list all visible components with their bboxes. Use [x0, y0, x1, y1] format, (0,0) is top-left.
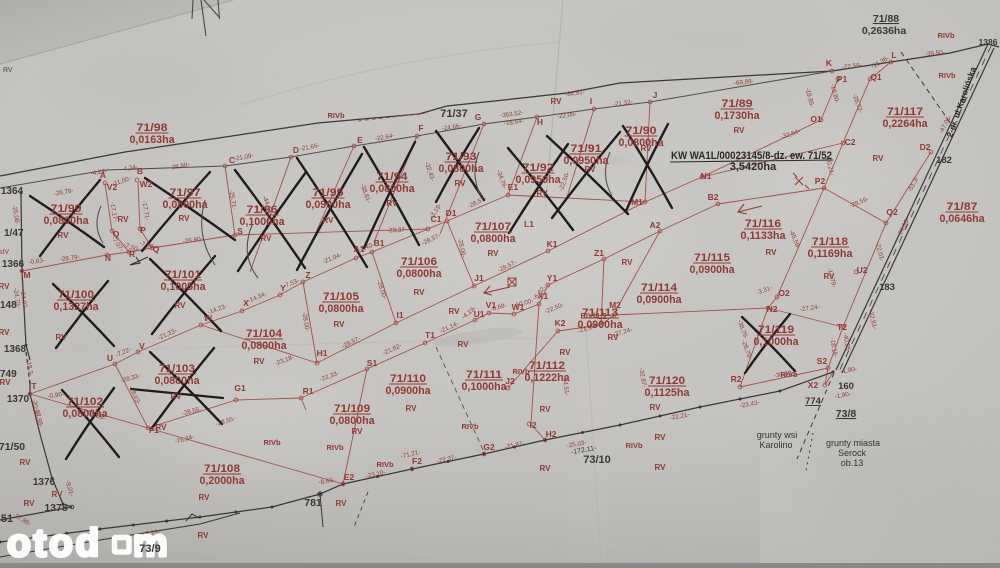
svg-text:C2: C2 — [845, 137, 856, 147]
svg-text:71/89: 71/89 — [722, 98, 753, 110]
svg-text:P: P — [140, 225, 146, 235]
svg-text:0,1730ha: 0,1730ha — [715, 110, 761, 122]
svg-text:E2: E2 — [344, 472, 355, 482]
svg-text:G: G — [475, 112, 482, 122]
svg-text:otod: otod — [7, 522, 102, 563]
svg-text:RV: RV — [537, 189, 549, 198]
svg-text:I2: I2 — [529, 420, 536, 430]
svg-text:1378: 1378 — [44, 502, 68, 514]
svg-text:182: 182 — [936, 155, 952, 166]
svg-text:71/107: 71/107 — [475, 221, 511, 233]
svg-text:71/99: 71/99 — [51, 203, 82, 215]
svg-text:RV: RV — [560, 348, 572, 357]
svg-text:73/8: 73/8 — [836, 408, 857, 420]
svg-text:0,0800ha: 0,0800ha — [471, 233, 517, 245]
svg-text:E: E — [357, 135, 363, 145]
svg-text:0,0800ha: 0,0800ha — [439, 163, 485, 175]
svg-text:RIVb: RIVb — [376, 460, 394, 469]
svg-text:0,0800ha: 0,0800ha — [370, 183, 416, 195]
svg-text:RV: RV — [540, 405, 552, 414]
svg-text:U: U — [107, 353, 113, 363]
svg-text:RV: RV — [56, 333, 68, 342]
svg-text:71/50: 71/50 — [0, 441, 25, 453]
svg-text:3,5420ha: 3,5420ha — [730, 161, 777, 173]
svg-text:J1: J1 — [474, 273, 484, 283]
svg-text:RV: RV — [585, 165, 597, 174]
svg-text:R2: R2 — [731, 374, 742, 384]
svg-text:U2: U2 — [857, 265, 868, 275]
svg-text:RV: RV — [414, 288, 426, 297]
svg-text:0,0800ha: 0,0800ha — [242, 340, 288, 352]
svg-text:71/106: 71/106 — [401, 256, 437, 268]
svg-text:T1: T1 — [425, 330, 435, 340]
svg-text:1/47: 1/47 — [4, 228, 24, 239]
svg-text:71/100: 71/100 — [58, 289, 94, 301]
svg-text:L: L — [891, 50, 896, 60]
svg-text:RV: RV — [0, 282, 10, 291]
svg-text:F: F — [418, 123, 423, 133]
svg-text:RV: RV — [540, 464, 552, 473]
svg-text:71/101: 71/101 — [165, 269, 201, 281]
svg-text:RV: RV — [650, 403, 662, 412]
svg-text:0,1133ha: 0,1133ha — [741, 230, 787, 242]
svg-text:73/9: 73/9 — [139, 543, 160, 555]
svg-text:RV: RV — [622, 258, 634, 267]
svg-text:774: 774 — [805, 396, 822, 407]
svg-text:0,1125ha: 0,1125ha — [645, 387, 691, 399]
svg-text:71/37: 71/37 — [440, 108, 468, 120]
svg-text:B2: B2 — [708, 192, 719, 202]
svg-text:71/91: 71/91 — [571, 143, 602, 155]
svg-text:RV: RV — [406, 404, 418, 413]
svg-text:0,0900ha: 0,0900ha — [306, 199, 352, 211]
svg-text:O1: O1 — [810, 114, 822, 124]
svg-text:Z: Z — [305, 270, 310, 280]
svg-text:0,0800ha: 0,0800ha — [155, 375, 201, 387]
svg-text:71/87: 71/87 — [947, 201, 978, 213]
svg-text:RV: RV — [171, 392, 183, 401]
svg-text:sIV: sIV — [0, 249, 9, 256]
svg-text:RV: RV — [198, 531, 210, 540]
svg-text:71/90: 71/90 — [626, 125, 657, 137]
svg-text:RV: RV — [734, 126, 746, 135]
svg-text:RV: RV — [3, 67, 13, 74]
svg-text:RV: RV — [655, 433, 667, 442]
svg-text:0,0900ha: 0,0900ha — [386, 385, 432, 397]
svg-text:RV: RV — [488, 249, 500, 258]
svg-text:RV: RV — [0, 328, 10, 337]
svg-text:0,1000ha: 0,1000ha — [754, 336, 800, 348]
svg-text:160: 160 — [838, 381, 854, 392]
svg-text:71/94: 71/94 — [377, 171, 409, 183]
svg-text:D1: D1 — [446, 208, 457, 218]
svg-text:RV: RV — [156, 423, 168, 432]
svg-text:Q2: Q2 — [886, 207, 898, 217]
svg-text:RV: RV — [449, 307, 461, 316]
svg-text:71/95: 71/95 — [313, 187, 344, 199]
svg-text:0,0800ha: 0,0800ha — [163, 199, 209, 211]
svg-text:I: I — [590, 96, 592, 106]
svg-text:RV: RV — [20, 458, 32, 467]
svg-text:0,1327ha: 0,1327ha — [54, 301, 100, 313]
svg-text:E1: E1 — [508, 182, 519, 192]
svg-text:RIVb: RIVb — [263, 438, 281, 447]
svg-text:Karolino: Karolino — [759, 440, 792, 450]
svg-text:71/115: 71/115 — [694, 252, 730, 264]
svg-text:71/114: 71/114 — [641, 282, 678, 294]
svg-text:M: M — [23, 270, 30, 280]
svg-text:K2: K2 — [555, 318, 566, 328]
svg-text:1366: 1366 — [2, 259, 25, 270]
svg-text:P1: P1 — [837, 74, 848, 84]
svg-text:RV: RV — [641, 144, 653, 153]
svg-text:RV: RV — [458, 340, 470, 349]
svg-text:Z1: Z1 — [594, 248, 604, 258]
svg-text:0,0800ha: 0,0800ha — [397, 268, 443, 280]
svg-text:0,1000ha: 0,1000ha — [462, 381, 508, 393]
svg-text:K1: K1 — [547, 239, 558, 249]
svg-text:71/110: 71/110 — [390, 373, 426, 385]
svg-text:0,0900ha: 0,0900ha — [637, 294, 683, 306]
svg-text:Y1: Y1 — [547, 273, 558, 283]
svg-text:S1: S1 — [367, 358, 378, 368]
svg-text:RV: RV — [455, 179, 467, 188]
svg-text:RIVb: RIVb — [512, 367, 530, 376]
svg-text:0,1169ha: 0,1169ha — [808, 248, 854, 260]
svg-text:RV: RV — [352, 427, 364, 436]
svg-text:D2: D2 — [920, 142, 931, 152]
svg-text:RV: RV — [551, 97, 563, 106]
svg-text:T2: T2 — [837, 322, 847, 332]
svg-text:71/88: 71/88 — [873, 13, 899, 25]
svg-text:N2: N2 — [767, 304, 778, 314]
svg-text:71/92: 71/92 — [523, 162, 554, 174]
svg-text:71/108: 71/108 — [204, 463, 240, 475]
svg-text:RV: RV — [334, 320, 346, 329]
svg-text:P2: P2 — [815, 176, 826, 186]
svg-text:0,0800ha: 0,0800ha — [330, 415, 376, 427]
svg-text:RV: RV — [179, 214, 191, 223]
svg-text:N: N — [105, 253, 111, 263]
svg-text:H2: H2 — [546, 429, 557, 439]
svg-text:R1: R1 — [303, 386, 314, 396]
svg-text:71/111: 71/111 — [466, 369, 502, 381]
svg-text:Serock: Serock — [838, 448, 867, 458]
svg-text:183: 183 — [879, 282, 895, 293]
svg-text:X2: X2 — [808, 380, 819, 390]
svg-text:1364: 1364 — [1, 186, 24, 197]
svg-text:RV: RV — [24, 499, 36, 508]
svg-text:71/93: 71/93 — [446, 151, 477, 163]
svg-text:V: V — [139, 341, 145, 351]
svg-text:RIVb: RIVb — [938, 71, 956, 80]
svg-text:71/118: 71/118 — [812, 236, 848, 248]
svg-text:RV: RV — [58, 231, 70, 240]
svg-text:0,0800ha: 0,0800ha — [319, 303, 365, 315]
svg-text:71/105: 71/105 — [323, 291, 359, 303]
svg-text:71/98: 71/98 — [137, 122, 168, 134]
svg-text:-23,37-: -23,37- — [387, 226, 407, 234]
svg-text:H1: H1 — [317, 348, 328, 358]
svg-text:148: 148 — [0, 300, 17, 311]
svg-text:H: H — [537, 117, 543, 127]
svg-text:RIVb: RIVb — [625, 441, 643, 450]
svg-text:L2: L2 — [597, 311, 607, 321]
svg-text:71/97: 71/97 — [170, 187, 201, 199]
svg-text:0,2264ha: 0,2264ha — [883, 118, 929, 130]
svg-text:71/120: 71/120 — [649, 375, 685, 387]
svg-text:RV: RV — [199, 493, 211, 502]
svg-text:I1: I1 — [396, 310, 403, 320]
svg-text:RV: RV — [175, 301, 187, 310]
svg-text:0,0646ha: 0,0646ha — [940, 213, 986, 225]
svg-text:73/10: 73/10 — [583, 454, 611, 466]
svg-text:RIVb: RIVb — [461, 422, 479, 431]
svg-text:RIVb: RIVb — [937, 31, 955, 40]
svg-text:71/109: 71/109 — [334, 403, 370, 415]
svg-text:G2: G2 — [483, 442, 495, 452]
svg-text:T: T — [31, 381, 37, 391]
svg-text:RV: RV — [52, 490, 64, 499]
svg-text:N1: N1 — [701, 171, 712, 181]
svg-text:0,0900ha: 0,0900ha — [690, 264, 736, 276]
svg-text:RIVb: RIVb — [326, 443, 344, 452]
svg-text:0,0800ha: 0,0800ha — [44, 215, 90, 227]
svg-text:RV: RV — [336, 499, 348, 508]
svg-text:M1: M1 — [631, 197, 643, 207]
svg-text:0,1005ha: 0,1005ha — [161, 281, 207, 293]
svg-text:J: J — [653, 90, 658, 100]
svg-text:1386: 1386 — [979, 37, 998, 47]
svg-text:781: 781 — [304, 497, 322, 509]
svg-text:71/112: 71/112 — [529, 360, 565, 372]
svg-text:0,2636ha: 0,2636ha — [862, 25, 907, 37]
svg-text:D: D — [293, 145, 299, 155]
svg-text:O2: O2 — [778, 288, 790, 298]
svg-text:grunty miasta: grunty miasta — [826, 438, 880, 448]
svg-text:1368: 1368 — [4, 344, 27, 355]
svg-text:S2: S2 — [817, 356, 828, 366]
svg-text:0,0950ha: 0,0950ha — [516, 174, 562, 186]
svg-text:71/119: 71/119 — [758, 324, 794, 336]
svg-text:RV: RV — [873, 154, 885, 163]
svg-text:G1: G1 — [234, 383, 246, 393]
svg-text:M2: M2 — [609, 300, 621, 310]
svg-text:K: K — [826, 58, 833, 68]
svg-text:Q1: Q1 — [870, 72, 882, 82]
svg-text:grunty wsi: grunty wsi — [757, 430, 798, 440]
svg-text:71/103: 71/103 — [159, 363, 195, 375]
svg-text:71/116: 71/116 — [745, 218, 781, 230]
svg-text:71/104: 71/104 — [246, 328, 283, 340]
svg-text:ob.13: ob.13 — [841, 458, 864, 468]
svg-text:71/102: 71/102 — [67, 396, 103, 408]
svg-text:RIVb: RIVb — [327, 111, 345, 120]
svg-text:W2: W2 — [140, 179, 153, 189]
svg-text:1370: 1370 — [7, 394, 30, 405]
svg-text:749: 749 — [0, 369, 17, 380]
svg-text:L1: L1 — [524, 219, 534, 229]
svg-text:RV: RV — [387, 199, 399, 208]
svg-text:B1: B1 — [374, 238, 385, 248]
svg-text:RV: RV — [655, 463, 667, 472]
svg-text:0,1000ha: 0,1000ha — [240, 216, 286, 228]
svg-text:0,0163ha: 0,0163ha — [130, 134, 176, 146]
svg-text:S: S — [237, 226, 243, 236]
svg-text:1376: 1376 — [33, 477, 56, 488]
svg-text:RV: RV — [261, 234, 273, 243]
svg-text:A2: A2 — [650, 220, 661, 230]
svg-text:0,2000ha: 0,2000ha — [200, 475, 246, 487]
svg-text:F2: F2 — [412, 456, 422, 466]
svg-text:RV: RV — [254, 357, 266, 366]
svg-text:RIVb: RIVb — [580, 311, 598, 320]
svg-text:71/117: 71/117 — [887, 106, 923, 118]
svg-text:RV: RV — [766, 248, 778, 257]
svg-text:J2: J2 — [505, 376, 515, 386]
svg-text:RV: RV — [323, 216, 335, 225]
